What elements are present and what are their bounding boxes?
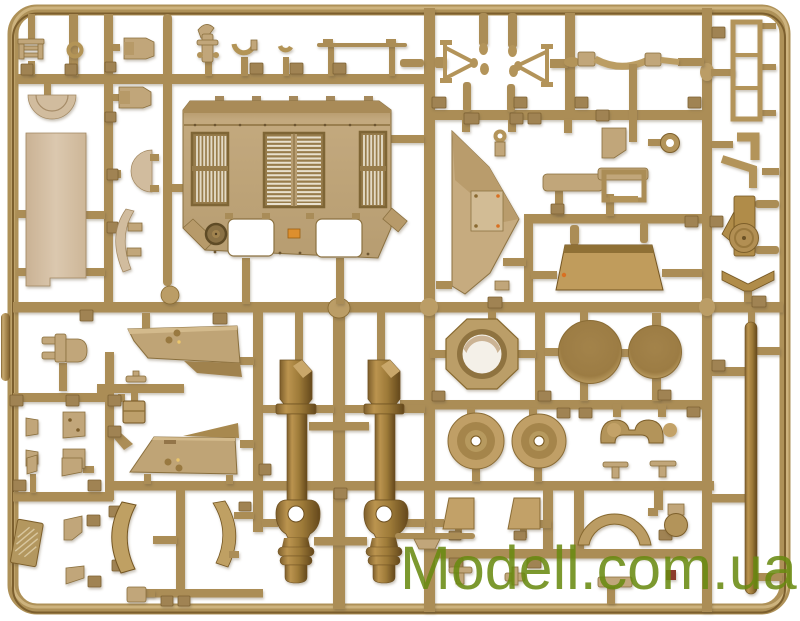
svg-text:Modell.com.ua: Modell.com.ua — [400, 534, 797, 602]
